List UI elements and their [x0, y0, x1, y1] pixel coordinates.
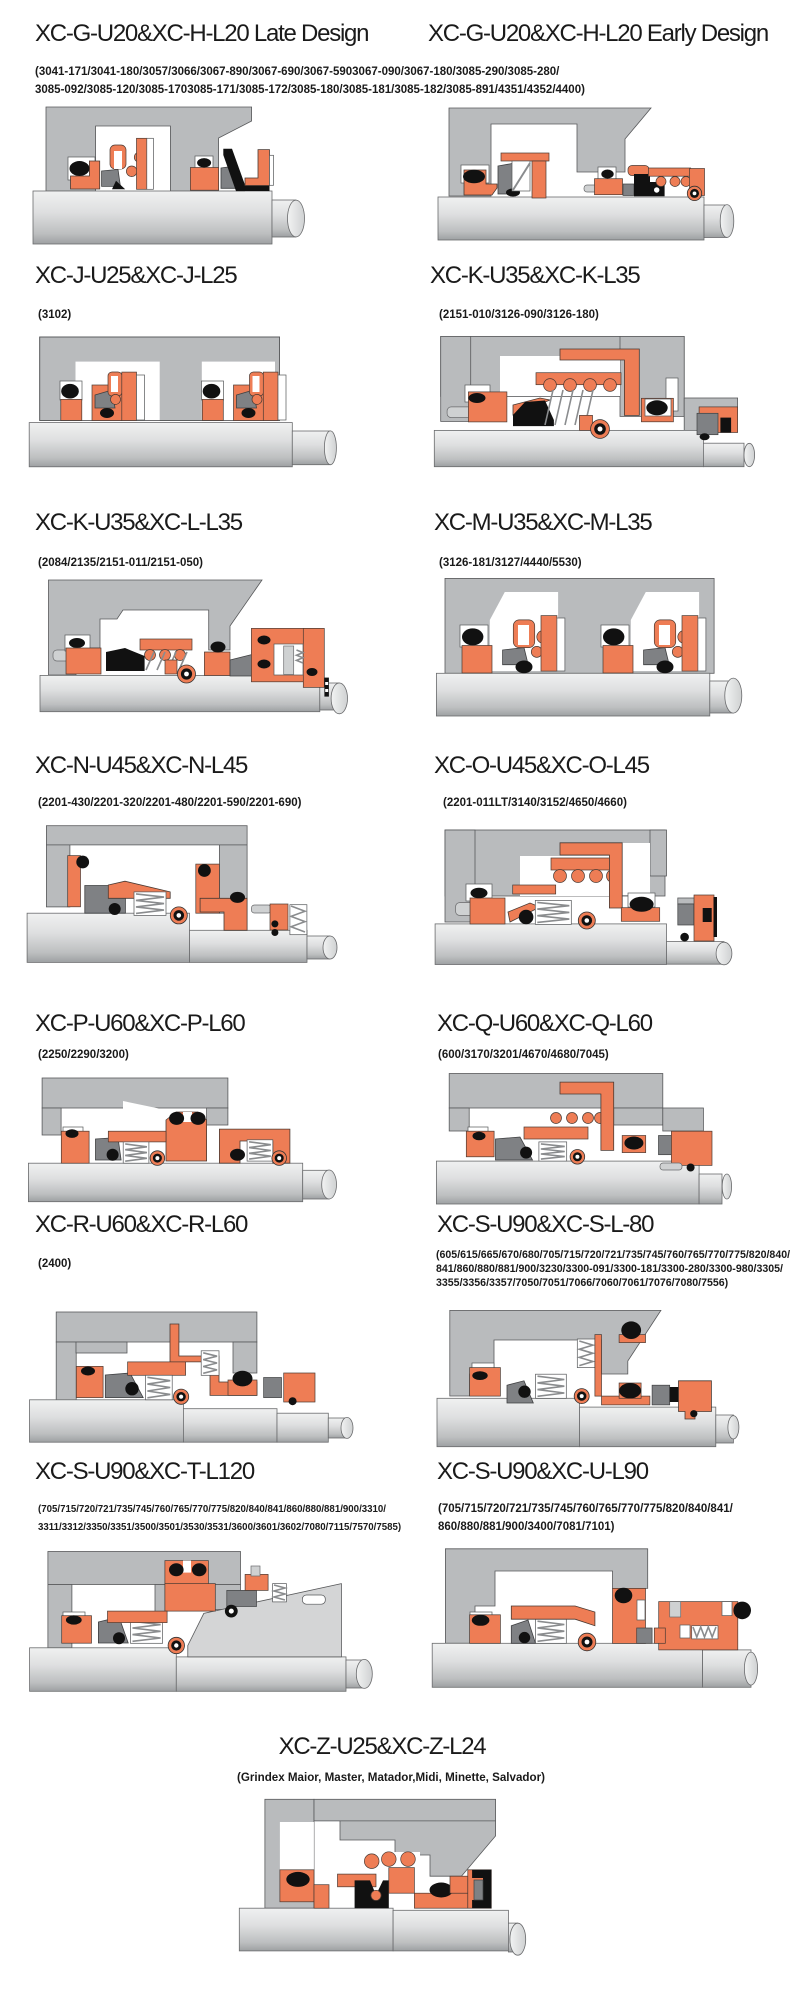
- svg-text:841/860/880/881/900/3230/3300-: 841/860/880/881/900/3230/3300-091/3300-1…: [436, 1263, 783, 1275]
- svg-text:3311/3312/3350/3351/3500/3501/: 3311/3312/3350/3351/3500/3501/3530/3531/…: [38, 1522, 401, 1533]
- svg-text:XC-O-U45&XC-O-L45: XC-O-U45&XC-O-L45: [434, 752, 650, 779]
- svg-text:(3126-181/3127/4440/5530): (3126-181/3127/4440/5530): [439, 557, 582, 569]
- svg-text:(600/3170/3201/4670/4680/7045): (600/3170/3201/4670/4680/7045): [438, 1049, 609, 1061]
- svg-text:XC-M-U35&XC-M-L35: XC-M-U35&XC-M-L35: [434, 509, 652, 536]
- svg-text:(705/715/720/721/735/745/760/7: (705/715/720/721/735/745/760/765/770/775…: [38, 1504, 386, 1515]
- svg-text:(705/715/720/721/735/745/760/7: (705/715/720/721/735/745/760/765/770/775…: [438, 1503, 734, 1515]
- svg-text:XC-R-U60&XC-R-L60: XC-R-U60&XC-R-L60: [35, 1211, 248, 1238]
- svg-text:3085-092/3085-120/3085-1703085: 3085-092/3085-120/3085-1703085-171/3085-…: [35, 84, 585, 96]
- svg-text:(Grindex Maior, Master, Matad: (Grindex Maior, Master, Matador,Midi, Mi…: [237, 1771, 545, 1784]
- svg-text:(3102): (3102): [38, 309, 71, 321]
- svg-text:(2151-010/3126-090/3126-180): (2151-010/3126-090/3126-180): [439, 309, 599, 321]
- svg-text:(2201-011LT/3140/3152/4650/466: (2201-011LT/3140/3152/4650/4660): [443, 797, 627, 809]
- svg-text:XC-J-U25&XC-J-L25: XC-J-U25&XC-J-L25: [35, 262, 237, 289]
- svg-text:XC-G-U20&XC-H-L20 Early Design: XC-G-U20&XC-H-L20 Early Design: [428, 20, 768, 47]
- svg-text:XC-S-U90&XC-S-L-80: XC-S-U90&XC-S-L-80: [437, 1211, 654, 1238]
- svg-text:XC-S-U90&XC-U-L90: XC-S-U90&XC-U-L90: [437, 1458, 649, 1485]
- svg-text:(2084/2135/2151-011/2151-050): (2084/2135/2151-011/2151-050): [38, 557, 203, 569]
- svg-text:XC-P-U60&XC-P-L60: XC-P-U60&XC-P-L60: [35, 1010, 245, 1037]
- svg-text:XC-Z-U25&XC-Z-L24: XC-Z-U25&XC-Z-L24: [279, 1733, 487, 1760]
- svg-text:3355/3356/3357/7050/7051/7066/: 3355/3356/3357/7050/7051/7066/7060/7061/…: [436, 1277, 728, 1289]
- svg-text:XC-K-U35&XC-L-L35: XC-K-U35&XC-L-L35: [35, 509, 243, 536]
- svg-text:XC-S-U90&XC-T-L120: XC-S-U90&XC-T-L120: [35, 1458, 255, 1485]
- svg-text:XC-Q-U60&XC-Q-L60: XC-Q-U60&XC-Q-L60: [437, 1010, 653, 1037]
- svg-text:860/880/881/900/3400/7081/7101: 860/880/881/900/3400/7081/7101): [438, 1521, 615, 1533]
- svg-text:XC-K-U35&XC-K-L35: XC-K-U35&XC-K-L35: [430, 262, 640, 289]
- svg-text:(605/615/665/670/680/705/715/7: (605/615/665/670/680/705/715/720/721/735…: [436, 1249, 790, 1261]
- svg-text:XC-N-U45&XC-N-L45: XC-N-U45&XC-N-L45: [35, 752, 248, 779]
- svg-text:(2250/2290/3200): (2250/2290/3200): [38, 1049, 129, 1061]
- svg-text:(2400): (2400): [38, 1258, 71, 1270]
- svg-text:(2201-430/2201-320/2201-480/22: (2201-430/2201-320/2201-480/2201-590/220…: [38, 797, 302, 809]
- svg-text:XC-G-U20&XC-H-L20 Late Design: XC-G-U20&XC-H-L20 Late Design: [35, 20, 368, 47]
- svg-text:(3041-171/3041-180/3057/3066/3: (3041-171/3041-180/3057/3066/3067-890/30…: [35, 66, 560, 78]
